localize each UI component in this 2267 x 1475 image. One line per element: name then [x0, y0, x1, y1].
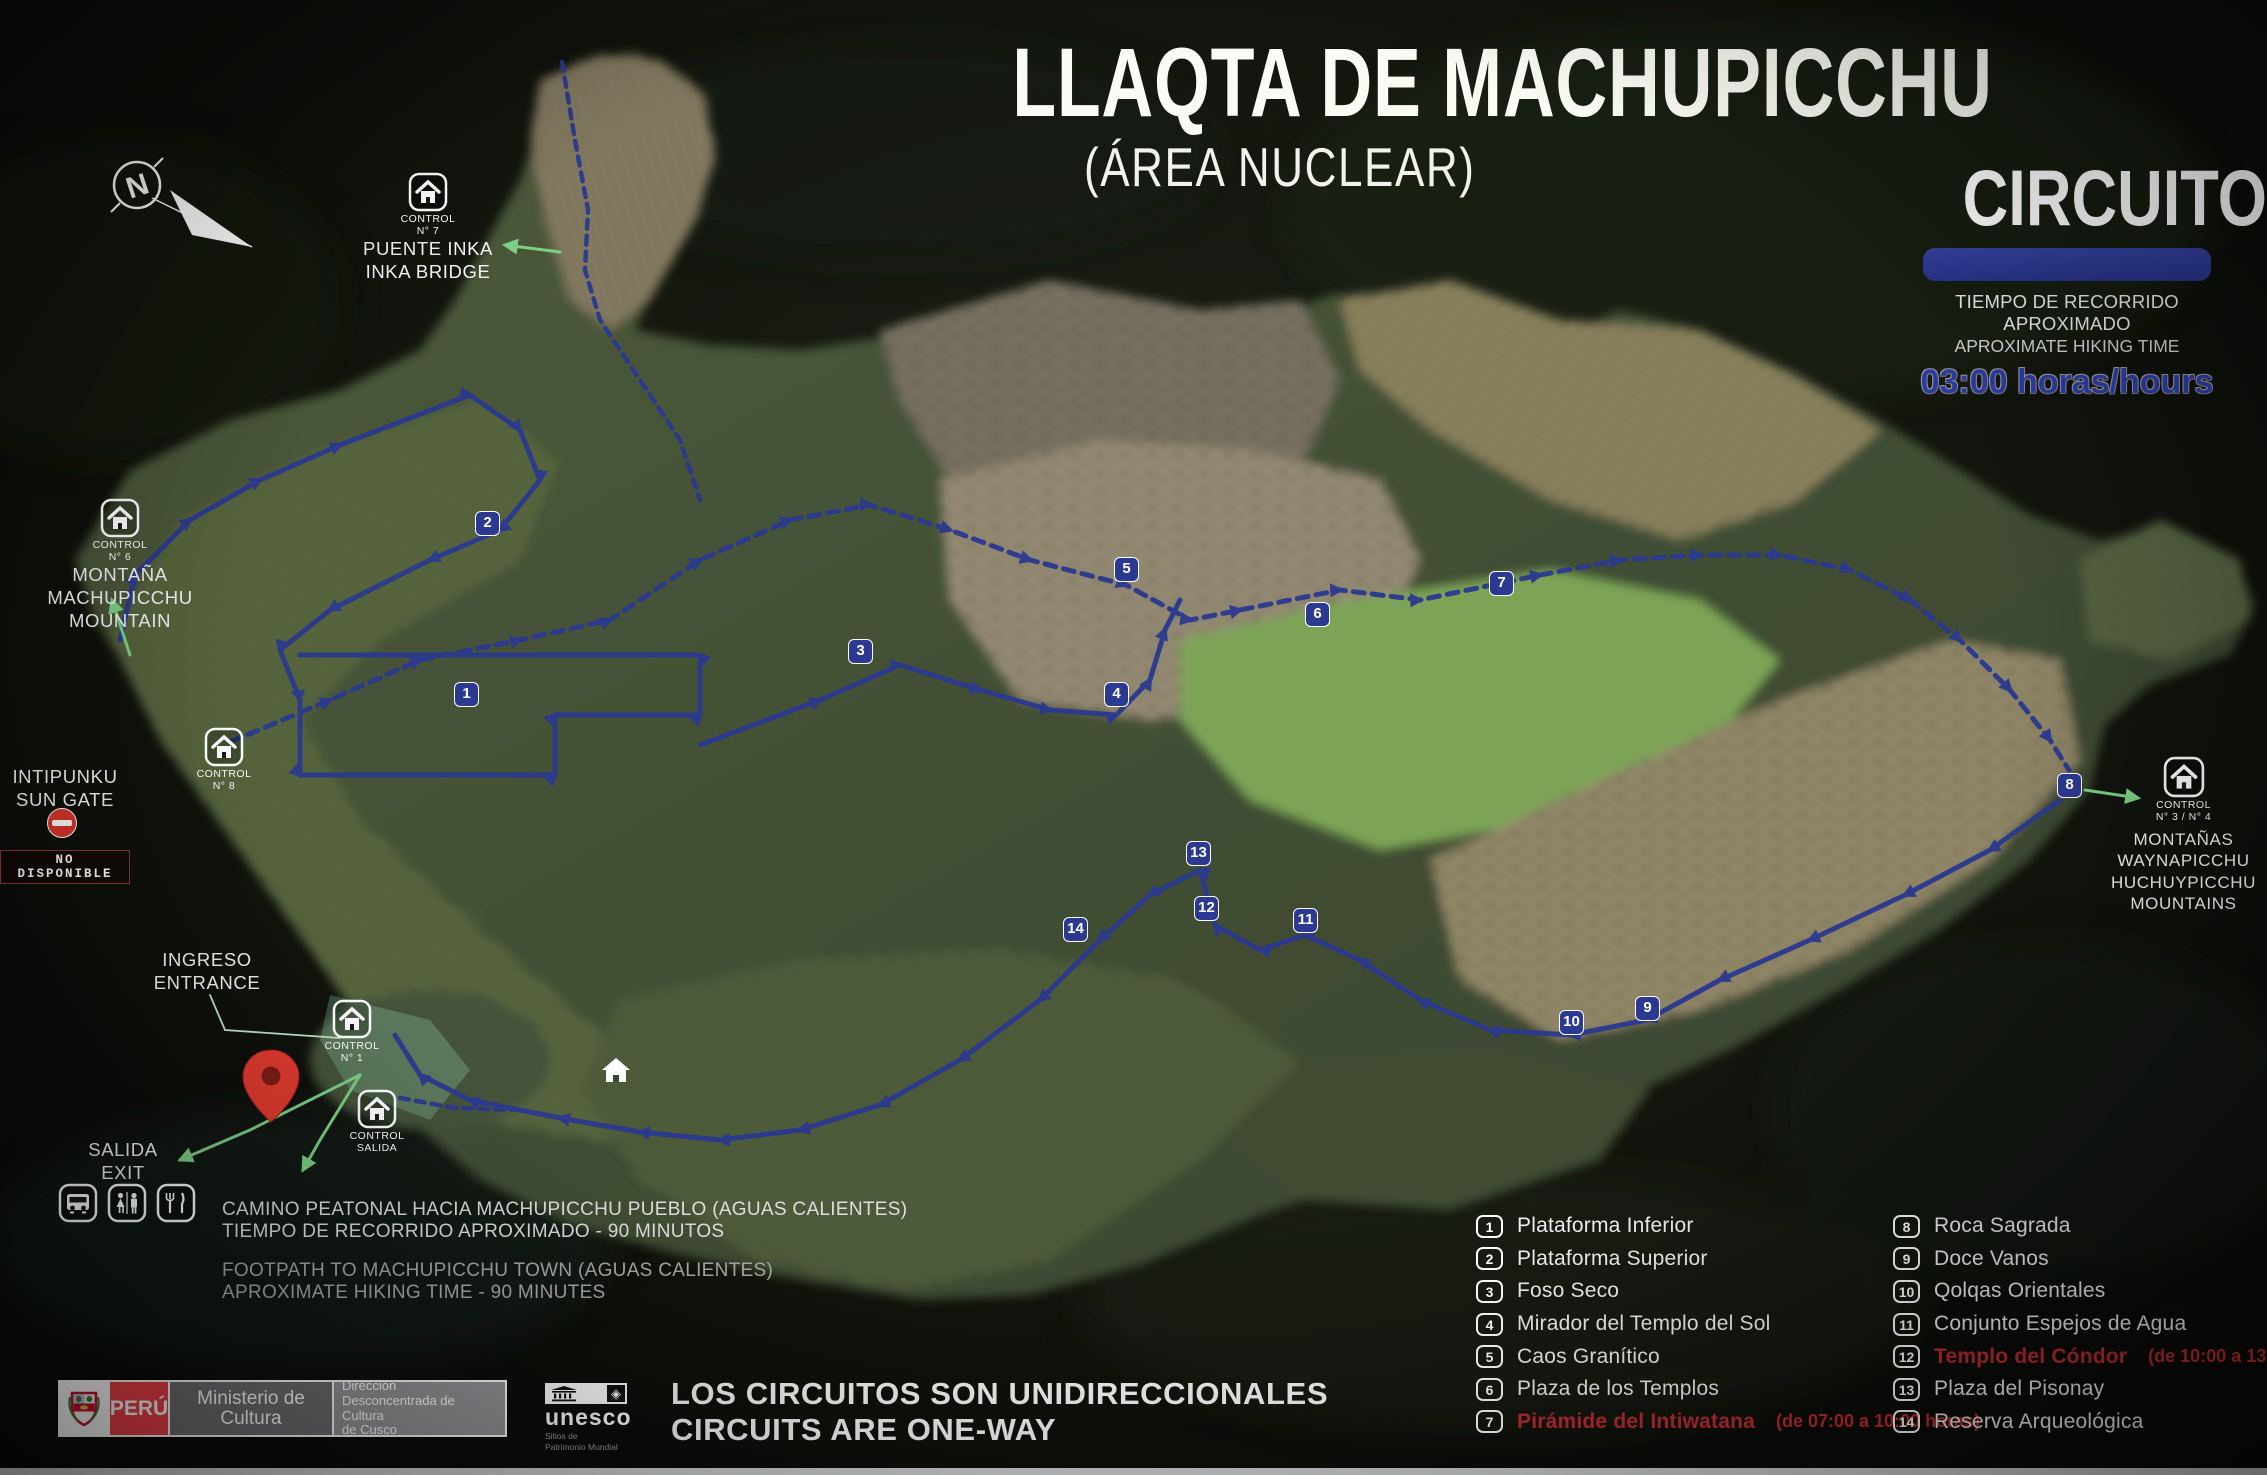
hiking-time-label-en: APROXIMATE HIKING TIME: [1918, 336, 2216, 357]
map-marker-9: 9: [1635, 996, 1660, 1021]
footpath-en-line1: FOOTPATH TO MACHUPICCHU TOWN (AGUAS CALI…: [222, 1260, 907, 1282]
legend-time-note: (de 10:00 a 13:00 horas): [2148, 1346, 2267, 1367]
machupicchu-circuit-map-poster: N LLAQTA DE MACHUPICCHU (ÁREA NUCLEAR) C…: [0, 0, 2267, 1475]
legend-item-12: 12Templo del Cóndor(de 10:00 a 13:00 hor…: [1893, 1340, 2267, 1373]
map-marker-12: 12: [1194, 896, 1219, 921]
unesco-logo-block: ◈ unesco Sitios de Patrimonio Mundial: [545, 1383, 627, 1452]
legend-item-14: 14Reserva Arqueológica: [1893, 1406, 2267, 1439]
map-marker-10: 10: [1559, 1010, 1584, 1035]
landmark-waynapicchu: CONTROL N° 3 / N° 4 MONTAÑAS WAYNAPICCHU…: [2100, 756, 2267, 914]
legend-number: 10: [1893, 1280, 1920, 1303]
title-main: LLAQTA DE MACHUPICCHU: [1012, 34, 1993, 133]
entrance-label-en: ENTRANCE: [137, 971, 277, 994]
control-number: N° 1: [341, 1052, 364, 1064]
landmark-name-en: MOUNTAIN: [30, 609, 210, 632]
one-way-notice: LOS CIRCUITOS SON UNIDIRECCIONALES CIRCU…: [671, 1378, 1328, 1449]
map-marker-1: 1: [454, 682, 479, 707]
map-marker-4: 4: [1104, 682, 1129, 707]
legend-item-10: 10Qolqas Orientales: [1893, 1275, 2267, 1308]
control-house-icon: [2163, 756, 2205, 798]
direction-label: Dirección Desconcentrada de Cultura de C…: [334, 1382, 505, 1435]
map-marker-6: 6: [1305, 602, 1330, 627]
map-marker-2: 2: [475, 511, 500, 536]
legend-col-2: 8Roca Sagrada9Doce Vanos10Qolqas Orienta…: [1893, 1210, 2267, 1438]
legend-label: Templo del Cóndor: [1934, 1345, 2127, 1369]
unesco-subtitle-line1: Sitios de: [545, 1431, 627, 1442]
landmark-name-en: INKA BRIDGE: [348, 260, 508, 283]
hiking-time-value: 03:00 horas/hours: [1918, 363, 2216, 402]
legend-label: Plataforma Inferior: [1517, 1214, 1694, 1238]
legend-label: Pirámide del Intiwatana: [1517, 1410, 1755, 1434]
legend-label: Conjunto Espejos de Agua: [1934, 1312, 2186, 1336]
landmark-intipunku: INTIPUNKU SUN GATE NO DISPONIBLE: [0, 765, 130, 884]
landmark-name: HUCHUYPICCHU: [2100, 872, 2267, 893]
control-number: N° 8: [213, 780, 236, 792]
legend-item-3: 3Foso Seco: [1476, 1275, 1893, 1308]
landmark-name-es: PUENTE INKA: [348, 237, 508, 260]
legend-item-11: 11Conjunto Espejos de Agua: [1893, 1308, 2267, 1341]
legend-item-9: 9Doce Vanos: [1893, 1243, 2267, 1276]
unesco-subtitle-line2: Patrimonio Mundial: [545, 1442, 627, 1453]
control-house-icon: [357, 1089, 397, 1129]
exit-label-es: SALIDA: [53, 1138, 193, 1161]
status-badge-not-available: NO DISPONIBLE: [0, 850, 130, 884]
control-label: CONTROL: [2156, 799, 2211, 811]
legend-number: 3: [1476, 1280, 1503, 1303]
title-sub: (ÁREA NUCLEAR): [1084, 135, 1476, 199]
control-number: N° 7: [417, 225, 440, 237]
legend-label: Doce Vanos: [1934, 1247, 2049, 1271]
legend-item-1: 1Plataforma Inferior: [1476, 1210, 1893, 1243]
legend-item-5: 5Caos Granítico: [1476, 1340, 1893, 1373]
landmark-name-es: INTIPUNKU: [0, 765, 130, 788]
legend-number: 8: [1893, 1215, 1920, 1238]
landmark-name: MACHUPICCHU: [30, 586, 210, 609]
direction-line1: Dirección: [342, 1379, 497, 1394]
control-label: CONTROL: [325, 1040, 380, 1052]
legend-number: 6: [1476, 1378, 1503, 1401]
entrance-label-es: INGRESO: [137, 948, 277, 971]
control-label: CONTROL: [93, 539, 148, 551]
legend-number: 5: [1476, 1345, 1503, 1368]
landmark-name: MONTAÑA: [30, 563, 210, 586]
map-marker-7: 7: [1489, 571, 1514, 596]
control-number: N° 6: [109, 551, 132, 563]
page-title: LLAQTA DE MACHUPICCHU (ÁREA NUCLEAR): [840, 34, 1720, 199]
unesco-diamond-icon: ◈: [607, 1385, 625, 1402]
legend-number: 13: [1893, 1378, 1920, 1401]
control-house-icon: [408, 172, 448, 212]
legend-number: 4: [1476, 1313, 1503, 1336]
legend-item-7: 7Pirámide del Intiwatana(de 07:00 a 10:0…: [1476, 1406, 1893, 1439]
map-marker-13: 13: [1186, 841, 1211, 866]
restroom-icon: [107, 1183, 147, 1223]
legend-label: Plaza de los Templos: [1517, 1377, 1719, 1401]
map-marker-11: 11: [1293, 908, 1318, 933]
unesco-temple-icon: [547, 1385, 581, 1402]
landmark-name-en: MOUNTAINS: [2100, 893, 2267, 914]
landmark-name: MONTAÑAS: [2100, 829, 2267, 850]
circuit-color-bar: [1923, 248, 2211, 281]
landmark-salida: SALIDA EXIT: [53, 1138, 193, 1184]
legend-item-8: 8Roca Sagrada: [1893, 1210, 2267, 1243]
footpath-es-line2: TIEMPO DE RECORRIDO APROXIMADO - 90 MINU…: [222, 1221, 907, 1243]
legend-label: Qolqas Orientales: [1934, 1279, 2105, 1303]
map-marker-3: 3: [848, 639, 873, 664]
bottom-edge-strip: [0, 1468, 2267, 1475]
legend-label: Plataforma Superior: [1517, 1247, 1708, 1271]
legend-item-6: 6Plaza de los Templos: [1476, 1373, 1893, 1406]
landmark-control-salida: CONTROL SALIDA: [337, 1089, 417, 1154]
legend-label: Reserva Arqueológica: [1934, 1410, 2143, 1434]
control-label: CONTROL: [197, 768, 252, 780]
control-house-icon: [332, 999, 372, 1039]
legend-number: 9: [1893, 1247, 1920, 1270]
legend-label: Roca Sagrada: [1934, 1214, 2071, 1238]
legend-label: Caos Granítico: [1517, 1345, 1660, 1369]
control-number: N° 3 / N° 4: [2156, 811, 2211, 823]
landmark-control-8: CONTROL N° 8: [174, 727, 274, 792]
unesco-label: unesco: [545, 1405, 627, 1429]
legend-label: Plaza del Pisonay: [1934, 1377, 2104, 1401]
legend-item-13: 13Plaza del Pisonay: [1893, 1373, 2267, 1406]
legend-item-4: 4Mirador del Templo del Sol: [1476, 1308, 1893, 1341]
legend-number: 7: [1476, 1410, 1503, 1433]
exit-label-en: EXIT: [53, 1161, 193, 1184]
control-label: CONTROL: [401, 213, 456, 225]
footpath-note: CAMINO PEATONAL HACIA MACHUPICCHU PUEBLO…: [222, 1199, 907, 1304]
landmark-montana-machupicchu: CONTROL N° 6 MONTAÑA MACHUPICCHU MOUNTAI…: [30, 498, 210, 633]
circuit-name: CIRCUITO 2: [1963, 160, 2267, 235]
circuit-info-panel: CIRCUITO 2 TIEMPO DE RECORRIDO APROXIMAD…: [1918, 160, 2216, 402]
direction-line3: de Cusco: [342, 1423, 497, 1438]
legend-label: Foso Seco: [1517, 1279, 1619, 1303]
control-house-icon: [204, 727, 244, 767]
peru-brand-label: PERÚ: [110, 1382, 168, 1435]
landmark-name-en: SUN GATE: [0, 788, 130, 811]
legend-number: 14: [1893, 1410, 1920, 1433]
landmark-name: WAYNAPICCHU: [2100, 850, 2267, 871]
control-number: SALIDA: [357, 1142, 397, 1154]
legend-number: 2: [1476, 1247, 1503, 1270]
landmark-puente-inka: CONTROL N° 7 PUENTE INKA INKA BRIDGE: [348, 172, 508, 283]
footpath-en-line2: APROXIMATE HIKING TIME - 90 MINUTES: [222, 1282, 907, 1304]
legend-number: 12: [1893, 1345, 1920, 1368]
landmark-ingreso: INGRESO ENTRANCE: [137, 948, 277, 994]
legend-item-2: 2Plataforma Superior: [1476, 1243, 1893, 1276]
facility-icons: [58, 1183, 196, 1223]
one-way-es: LOS CIRCUITOS SON UNIDIRECCIONALES: [671, 1378, 1328, 1411]
legend-number: 11: [1893, 1313, 1920, 1336]
footpath-es-line1: CAMINO PEATONAL HACIA MACHUPICCHU PUEBLO…: [222, 1199, 907, 1221]
landmark-control-1: CONTROL N° 1: [312, 999, 392, 1064]
bus-icon: [58, 1183, 98, 1223]
map-marker-14: 14: [1063, 917, 1088, 942]
legend-number: 1: [1476, 1215, 1503, 1238]
one-way-en: CIRCUITS ARE ONE-WAY: [671, 1414, 1328, 1447]
restaurant-icon: [156, 1183, 196, 1223]
legend-col-1: 1Plataforma Inferior2Plataforma Superior…: [1476, 1210, 1893, 1438]
legend-label: Mirador del Templo del Sol: [1517, 1312, 1770, 1336]
legend: 1Plataforma Inferior2Plataforma Superior…: [1476, 1210, 2267, 1438]
government-logo-bar: PERÚ Ministerio de Cultura Dirección Des…: [58, 1380, 507, 1437]
control-label: CONTROL: [350, 1130, 405, 1142]
hiking-time-label-es: TIEMPO DE RECORRIDO APROXIMADO: [1918, 291, 2216, 335]
control-house-icon: [100, 498, 140, 538]
map-marker-8: 8: [2057, 773, 2082, 798]
direction-line2: Desconcentrada de Cultura: [342, 1394, 497, 1424]
map-marker-5: 5: [1114, 557, 1139, 582]
peru-coat-of-arms-icon: [60, 1382, 108, 1435]
ministry-label: Ministerio de Cultura: [170, 1382, 332, 1435]
